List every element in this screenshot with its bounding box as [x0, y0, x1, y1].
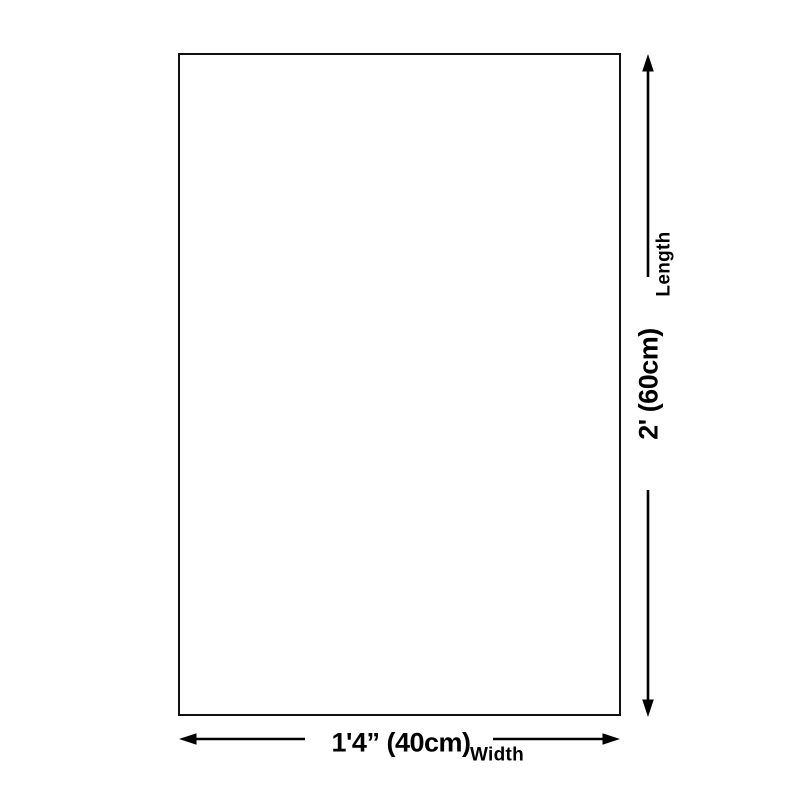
product-outline-rectangle — [178, 53, 621, 716]
length-value-label: 2' (60cm) — [636, 328, 663, 439]
size-diagram: Length 2' (60cm) 1'4” (40cm) Width — [0, 0, 800, 800]
arrow-left-icon — [179, 733, 197, 745]
arrow-right-icon — [603, 733, 621, 745]
arrow-up-icon — [642, 54, 654, 72]
arrow-down-icon — [642, 700, 654, 718]
width-axis-label: Width — [470, 746, 524, 765]
length-axis-label: Length — [655, 231, 674, 296]
width-value-label: 1'4” (40cm) — [332, 730, 471, 757]
